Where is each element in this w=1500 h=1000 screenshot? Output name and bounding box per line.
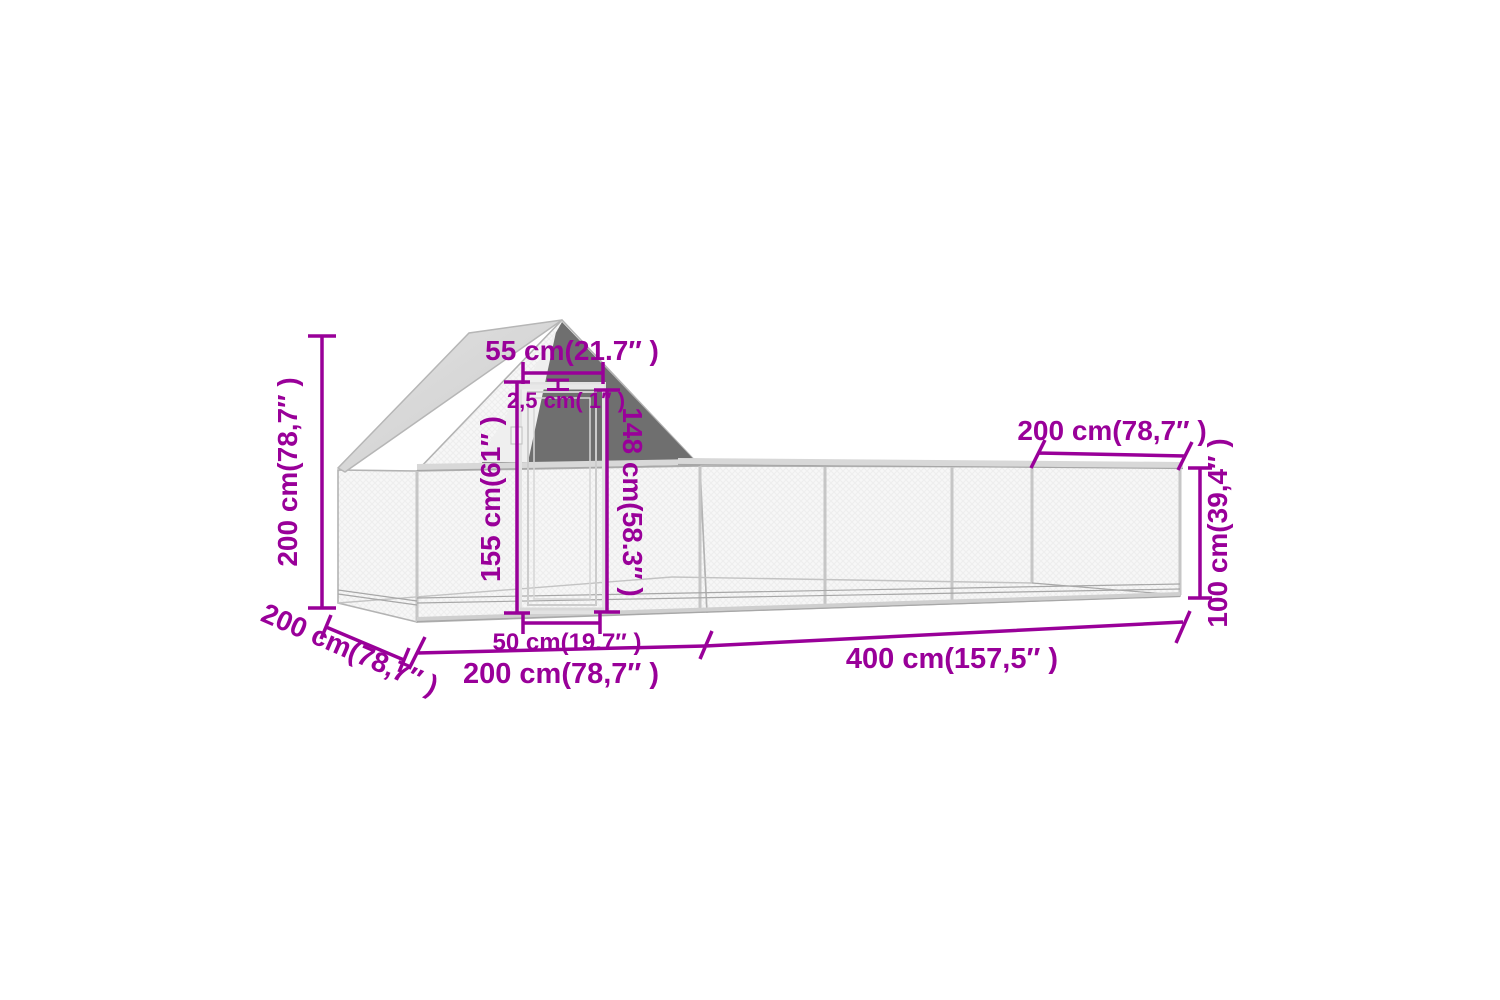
dim-door-height-label: 155 cm(61″ ): [475, 416, 506, 582]
dim-run-length: 400 cm(157,5″ ): [700, 611, 1190, 675]
diagram-page: 200 cm(78,7″ ) 55 cm(21.7″ ) 2,5 cm( 1″ …: [0, 0, 1500, 1000]
dim-total-height-line: [308, 336, 336, 608]
dim-run-top-depth-label: 200 cm(78,7″ ): [1017, 415, 1206, 446]
dim-run-height-label: 100 cm(39,4″ ): [1202, 438, 1233, 627]
chicken-coop-dimension-diagram: 200 cm(78,7″ ) 55 cm(21.7″ ) 2,5 cm( 1″ …: [0, 0, 1500, 1000]
dim-door-opening-height-label: 148 cm(58.3″ ): [617, 407, 648, 596]
dim-run-length-label: 400 cm(157,5″ ): [846, 643, 1058, 675]
dim-run-height: 100 cm(39,4″ ): [1188, 438, 1233, 627]
dim-gable-top-width-label: 55 cm(21.7″ ): [485, 335, 659, 366]
run-top-rail: [678, 461, 1183, 465]
coop-structure: [338, 320, 1183, 622]
dim-total-height: 200 cm(78,7″ ): [272, 336, 336, 608]
dim-total-height-label: 200 cm(78,7″ ): [272, 377, 303, 566]
dim-coop-length-label: 200 cm(78,7″ ): [463, 658, 659, 690]
